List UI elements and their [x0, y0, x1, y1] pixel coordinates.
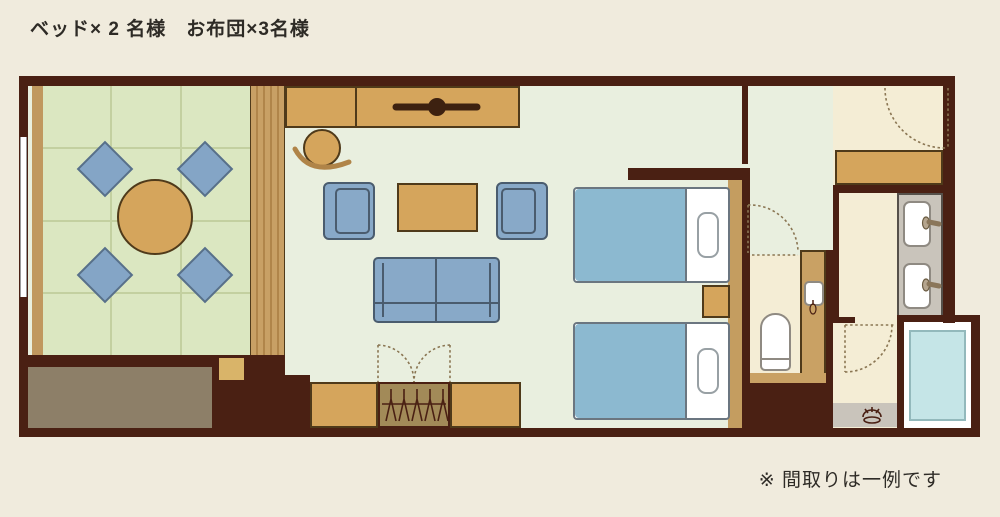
tv-board: [285, 86, 520, 128]
outer-wall-right: [943, 76, 955, 323]
armchair: [496, 182, 548, 240]
washroom-wall: [833, 193, 839, 317]
nightstand: [702, 285, 730, 318]
armchair-seat: [501, 188, 536, 234]
washbasin-icon: [903, 263, 931, 309]
stool: [303, 129, 341, 167]
floor-plan: [0, 0, 1000, 517]
tv-board-divider: [355, 88, 357, 126]
bath-ledge: [833, 403, 904, 427]
window-icon: [20, 137, 27, 297]
floorplan-note: ※ 間取りは一例です: [759, 465, 942, 492]
hand-sink-icon: [804, 281, 824, 306]
sofa-armrest: [375, 263, 384, 317]
entrance-wall: [833, 185, 943, 193]
armchair: [323, 182, 375, 240]
bathtub-icon: [909, 330, 966, 421]
shoe-cabinet: [835, 150, 943, 185]
alcove-area: [26, 367, 212, 428]
wall-block: [742, 383, 833, 428]
toilet-icon: [760, 313, 791, 371]
bed-blanket: [575, 324, 687, 418]
step-board: [219, 358, 244, 380]
washbasin-icon: [903, 201, 931, 247]
vanity-counter: [897, 193, 943, 318]
toilet-partition: [800, 250, 826, 377]
sofa-back-line: [375, 302, 498, 304]
bed: [573, 187, 730, 283]
pillow: [697, 348, 719, 394]
bed-niche-wall: [628, 168, 747, 180]
sofa-divider: [435, 259, 437, 321]
round-low-table: [117, 179, 193, 255]
sofa: [373, 257, 500, 323]
wall-corner: [285, 375, 310, 428]
outer-wall-top: [19, 76, 955, 86]
headboard-strip: [728, 180, 742, 428]
closet: [378, 382, 450, 428]
toilet-seat-line: [762, 358, 789, 360]
coffee-table: [397, 183, 478, 232]
tatami-grid-line: [43, 292, 250, 294]
toilet-room-sill: [750, 373, 826, 383]
wood-floor-strip: [250, 86, 285, 357]
storage-cabinet: [310, 382, 378, 428]
armchair-seat: [335, 188, 370, 234]
washroom-wall-stub: [833, 317, 855, 323]
storage-cabinet: [450, 382, 521, 428]
outer-wall-bottom: [19, 428, 980, 437]
sofa-armrest: [489, 263, 498, 317]
wall-stub: [742, 86, 748, 164]
tatami-grid-line: [43, 147, 250, 149]
bed: [573, 322, 730, 420]
bed-blanket: [575, 189, 687, 281]
tatami-edge-strip: [32, 86, 43, 357]
pillow: [697, 212, 719, 258]
